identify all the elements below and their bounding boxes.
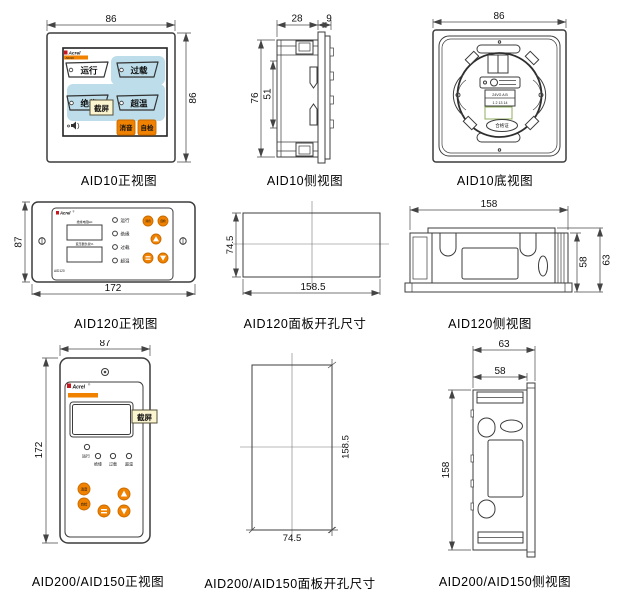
cert-oval: 合格证 <box>487 120 518 132</box>
logo-bar <box>68 393 98 398</box>
terminal-row1: 24VG A B <box>492 93 508 97</box>
panel-flange <box>527 383 535 557</box>
upper-capsule <box>478 418 495 437</box>
dim-width: 86 <box>433 11 566 28</box>
brand-name: Acrel <box>72 385 86 391</box>
svg-text:自检: 自检 <box>141 123 155 132</box>
display-window <box>70 402 133 437</box>
display1-label: 绝缘电阻kΩ <box>77 219 94 224</box>
insulation-led-label: 绝缘 <box>94 461 102 467</box>
run-indicator: 运行 <box>66 62 108 77</box>
dim-label-height: 74.5 <box>225 236 236 255</box>
svg-text:运行: 运行 <box>80 66 98 76</box>
caption-aid120-cutout: AID120面板开孔尺寸 <box>216 313 394 332</box>
screenshot-tag: 截屏 <box>90 100 113 115</box>
caption-aid200-cutout: AID200/AID150面板开孔尺寸 <box>190 573 390 592</box>
dim-label-height: 76 <box>250 92 261 104</box>
logo-mark-icon <box>67 384 71 389</box>
dim-label-height: 158 <box>441 461 452 478</box>
run-led-label: 运行 <box>121 217 130 224</box>
dim-label-width: 86 <box>493 11 505 22</box>
led-dot-icon <box>69 68 73 72</box>
drawing-aid10-front: 86 86 Acrel AID10 运行 过载 绝缘 超温 截屏 <box>10 8 220 176</box>
center-recess <box>462 248 518 279</box>
drawing-aid200-front: 87 172 Acrel ® 截屏 运行 绝缘 过载 超温 消音 <box>20 340 190 578</box>
snap-tab-upper <box>310 67 317 88</box>
svg-text:自检: 自检 <box>160 219 166 223</box>
display2-label: 变压器负载% <box>76 241 94 246</box>
dim-height: 86 <box>177 33 199 162</box>
led-dot-icon <box>120 68 124 72</box>
dim-label-body-depth: 58 <box>494 366 506 377</box>
figure-aid120-front: 87 172 Acrel ® 绝缘电阻kΩ 变压器负载% AID120 运行 绝… <box>10 196 222 308</box>
dim-label-height: 158.5 <box>341 435 352 459</box>
dim-label-clip-span: 51 <box>263 88 274 100</box>
overload-led-label: 过载 <box>121 244 130 251</box>
dim-total-depth: 63 <box>473 340 535 388</box>
dim-width: 87 <box>60 340 150 356</box>
figure-aid200-front: 87 172 Acrel ® 截屏 运行 绝缘 过载 超温 消音 <box>20 340 190 578</box>
panel-flange-inner <box>325 36 330 159</box>
menu-button <box>143 253 153 263</box>
led-dot-icon <box>70 101 74 105</box>
adjuster-bar <box>480 77 520 88</box>
figure-aid10-bottom: 86 24VG A B 1 2 13 14 合格证 <box>422 8 622 176</box>
caption-aid10-bottom: AID10底视图 <box>400 170 590 189</box>
insulation-led-label: 绝缘 <box>121 230 130 236</box>
mounting-clip-top <box>296 41 313 54</box>
caption-aid200-side: AID200/AID150侧视图 <box>405 571 605 590</box>
figure-aid10-front: 86 86 Acrel AID10 运行 过载 绝缘 超温 截屏 <box>10 8 220 176</box>
center-recess <box>488 440 523 497</box>
dim-label-height: 86 <box>188 92 199 104</box>
overload-led-label: 过载 <box>109 461 117 467</box>
caption-aid120-side: AID120侧视图 <box>390 313 590 332</box>
dim-label-body-height: 58 <box>579 256 590 268</box>
dim-label-total-depth: 63 <box>498 340 510 350</box>
cable-entry-blocks <box>488 55 508 73</box>
dim-width: 158 <box>410 199 568 230</box>
device-body <box>277 40 318 157</box>
drawing-aid120-side: 158 58 63 <box>400 196 622 308</box>
centerlines <box>233 201 389 288</box>
registered-mark: ® <box>73 210 75 214</box>
dim-label-width: 86 <box>105 14 117 25</box>
dim-width: 86 <box>47 14 175 31</box>
drawing-aid120-front: 87 172 Acrel ® 绝缘电阻kΩ 变压器负载% AID120 运行 绝… <box>10 196 222 308</box>
cutout-rect <box>243 213 380 277</box>
menu-button <box>98 505 110 517</box>
run-led-label: 运行 <box>82 453 90 459</box>
base-flange <box>405 283 572 292</box>
right-end-cap <box>555 233 568 283</box>
dimension-drawings-sheet: 86 86 Acrel AID10 运行 过载 绝缘 超温 截屏 <box>0 0 622 609</box>
svg-text:消音: 消音 <box>81 486 88 491</box>
panel-flange <box>318 32 325 163</box>
dim-label-height: 87 <box>14 236 25 248</box>
svg-text:自检: 自检 <box>81 501 88 506</box>
dim-label-width: 74.5 <box>283 533 302 544</box>
logo-mark-icon <box>64 51 68 55</box>
dim-height: 158 <box>441 390 471 550</box>
caption-aid120-front: AID120正视图 <box>10 313 222 332</box>
dim-label-width: 87 <box>99 340 111 349</box>
display-window-1 <box>67 225 102 240</box>
terminal-row2: 1 2 13 14 <box>493 101 508 105</box>
dim-width: 172 <box>32 283 195 295</box>
caption-aid10-front: AID10正视图 <box>14 170 224 189</box>
dim-height: 74.5 <box>225 213 241 277</box>
figure-aid120-side: 158 58 63 <box>400 196 622 308</box>
screenshot-tag: 截屏 <box>132 410 157 423</box>
dim-clip-span: 51 <box>263 61 278 128</box>
svg-text:超温: 超温 <box>129 99 148 109</box>
centerlines <box>240 353 345 542</box>
brand-name: Acrel <box>59 211 71 216</box>
svg-text:消音: 消音 <box>145 219 151 223</box>
dim-label-height: 172 <box>34 441 45 458</box>
top-vent-slot <box>477 45 520 53</box>
lower-capsule <box>478 500 495 518</box>
dim-label-body-depth: 28 <box>291 14 303 25</box>
svg-text:消音: 消音 <box>120 123 134 132</box>
svg-text:截屏: 截屏 <box>94 103 109 113</box>
figure-aid10-side: 28 9 76 51 <box>240 8 400 176</box>
figure-aid200-cutout: 158.5 74.5 <box>215 345 395 583</box>
mute-button: 消音 <box>117 120 135 135</box>
svg-text:截屏: 截屏 <box>137 412 152 422</box>
dim-label-width: 172 <box>105 283 122 294</box>
caption-aid10-side: AID10侧视图 <box>230 170 380 189</box>
model-text: AID120 <box>54 269 65 273</box>
dim-label-flange-depth: 9 <box>326 14 332 25</box>
led-dot-icon <box>120 101 124 105</box>
overtemp-led-label: 超温 <box>121 257 130 264</box>
drawing-aid200-cutout: 158.5 74.5 <box>215 345 395 583</box>
caption-aid200-front: AID200/AID150正视图 <box>13 571 183 590</box>
overtemp-led-label: 超温 <box>125 461 133 467</box>
drawing-aid120-cutout: 74.5 158.5 <box>225 196 403 308</box>
drawing-aid200-side: 63 58 158 <box>420 340 622 578</box>
dim-label-total-height: 63 <box>602 254 613 266</box>
dim-label-width: 158 <box>481 199 498 210</box>
cert-label: 合格证 <box>495 122 509 129</box>
mounting-clip-bottom <box>296 143 313 156</box>
dim-width: 158.5 <box>243 279 380 295</box>
drawing-aid10-side: 28 9 76 51 <box>240 8 400 176</box>
dim-body-depth: 58 <box>473 366 527 381</box>
dim-height: 87 <box>14 202 31 282</box>
drawing-aid10-bottom: 86 24VG A B 1 2 13 14 合格证 <box>422 8 622 176</box>
logo-mark-icon <box>56 211 59 215</box>
brand-model: AID10 <box>66 56 75 60</box>
terminal-block: 24VG A B 1 2 13 14 <box>485 90 515 106</box>
display-window-2 <box>67 247 102 262</box>
figure-aid120-cutout: 74.5 158.5 <box>225 196 403 308</box>
dim-body-height: 58 <box>570 233 603 292</box>
svg-text:过载: 过载 <box>130 66 148 76</box>
device-profile <box>277 32 334 163</box>
device-profile <box>471 383 535 557</box>
figure-aid200-side: 63 58 158 <box>420 340 622 578</box>
device-profile <box>405 228 572 292</box>
selftest-button: 自检 <box>138 120 156 135</box>
dim-label-width: 158.5 <box>300 282 325 293</box>
top-cover <box>428 228 555 233</box>
snap-tab-lower <box>310 104 317 125</box>
dim-height: 172 <box>34 358 58 543</box>
